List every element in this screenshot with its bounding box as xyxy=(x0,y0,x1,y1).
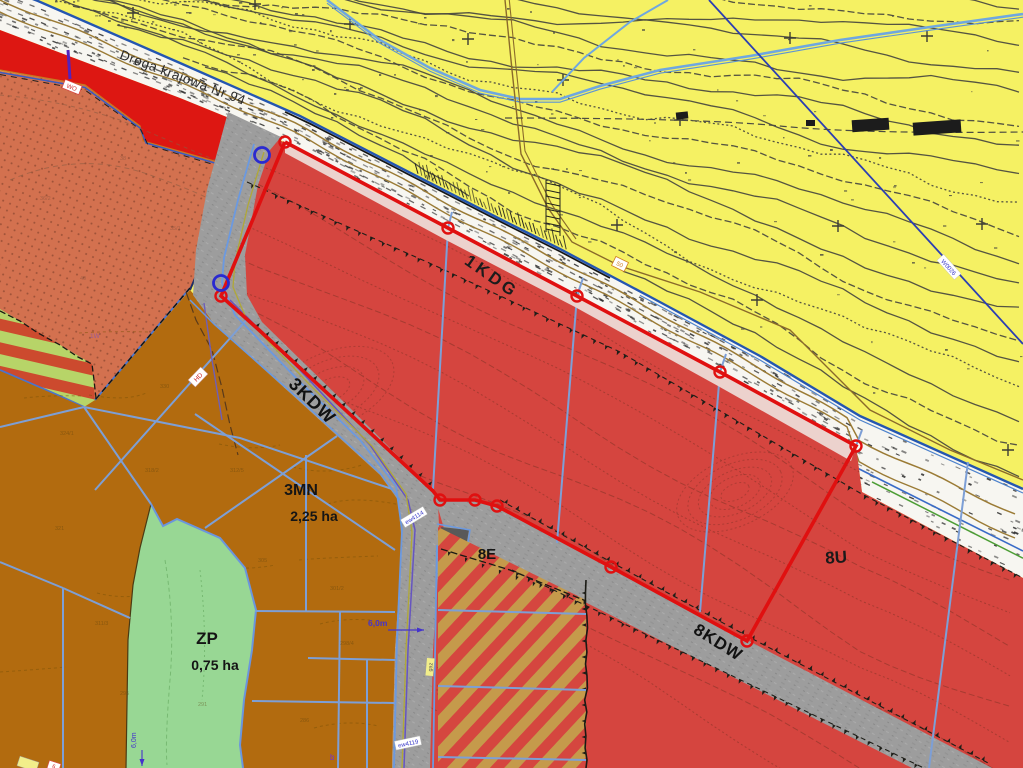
svg-text:36/2: 36/2 xyxy=(40,196,51,202)
svg-text:6,0m: 6,0m xyxy=(368,618,388,628)
svg-text:38: 38 xyxy=(120,156,126,162)
svg-text:295: 295 xyxy=(120,691,129,697)
svg-text:gaz: gaz xyxy=(428,662,435,672)
svg-text:40: 40 xyxy=(80,276,86,282)
svg-text:291: 291 xyxy=(198,702,207,708)
svg-text:6,0m: 6,0m xyxy=(131,732,138,748)
svg-text:3MN: 3MN xyxy=(284,482,318,499)
svg-text:8U: 8U xyxy=(825,547,848,567)
svg-text:298/4: 298/4 xyxy=(340,641,354,647)
svg-text:ZP: ZP xyxy=(196,629,218,648)
svg-text:321: 321 xyxy=(55,526,64,532)
svg-text:b: b xyxy=(330,753,335,762)
svg-text:1W: 1W xyxy=(90,333,101,340)
svg-text:324/1: 324/1 xyxy=(60,431,74,437)
svg-text:2,25 ha: 2,25 ha xyxy=(290,508,338,524)
svg-text:305: 305 xyxy=(258,558,267,564)
svg-text:286: 286 xyxy=(300,718,309,724)
svg-text:318/2: 318/2 xyxy=(145,468,159,474)
svg-text:330: 330 xyxy=(160,384,169,390)
svg-text:312/5: 312/5 xyxy=(230,468,244,474)
svg-text:301/2: 301/2 xyxy=(330,586,344,592)
svg-text:8E: 8E xyxy=(478,546,496,563)
svg-text:0,75 ha: 0,75 ha xyxy=(191,657,239,673)
svg-text:311/3: 311/3 xyxy=(95,621,108,627)
svg-text:35/1: 35/1 xyxy=(170,226,181,232)
